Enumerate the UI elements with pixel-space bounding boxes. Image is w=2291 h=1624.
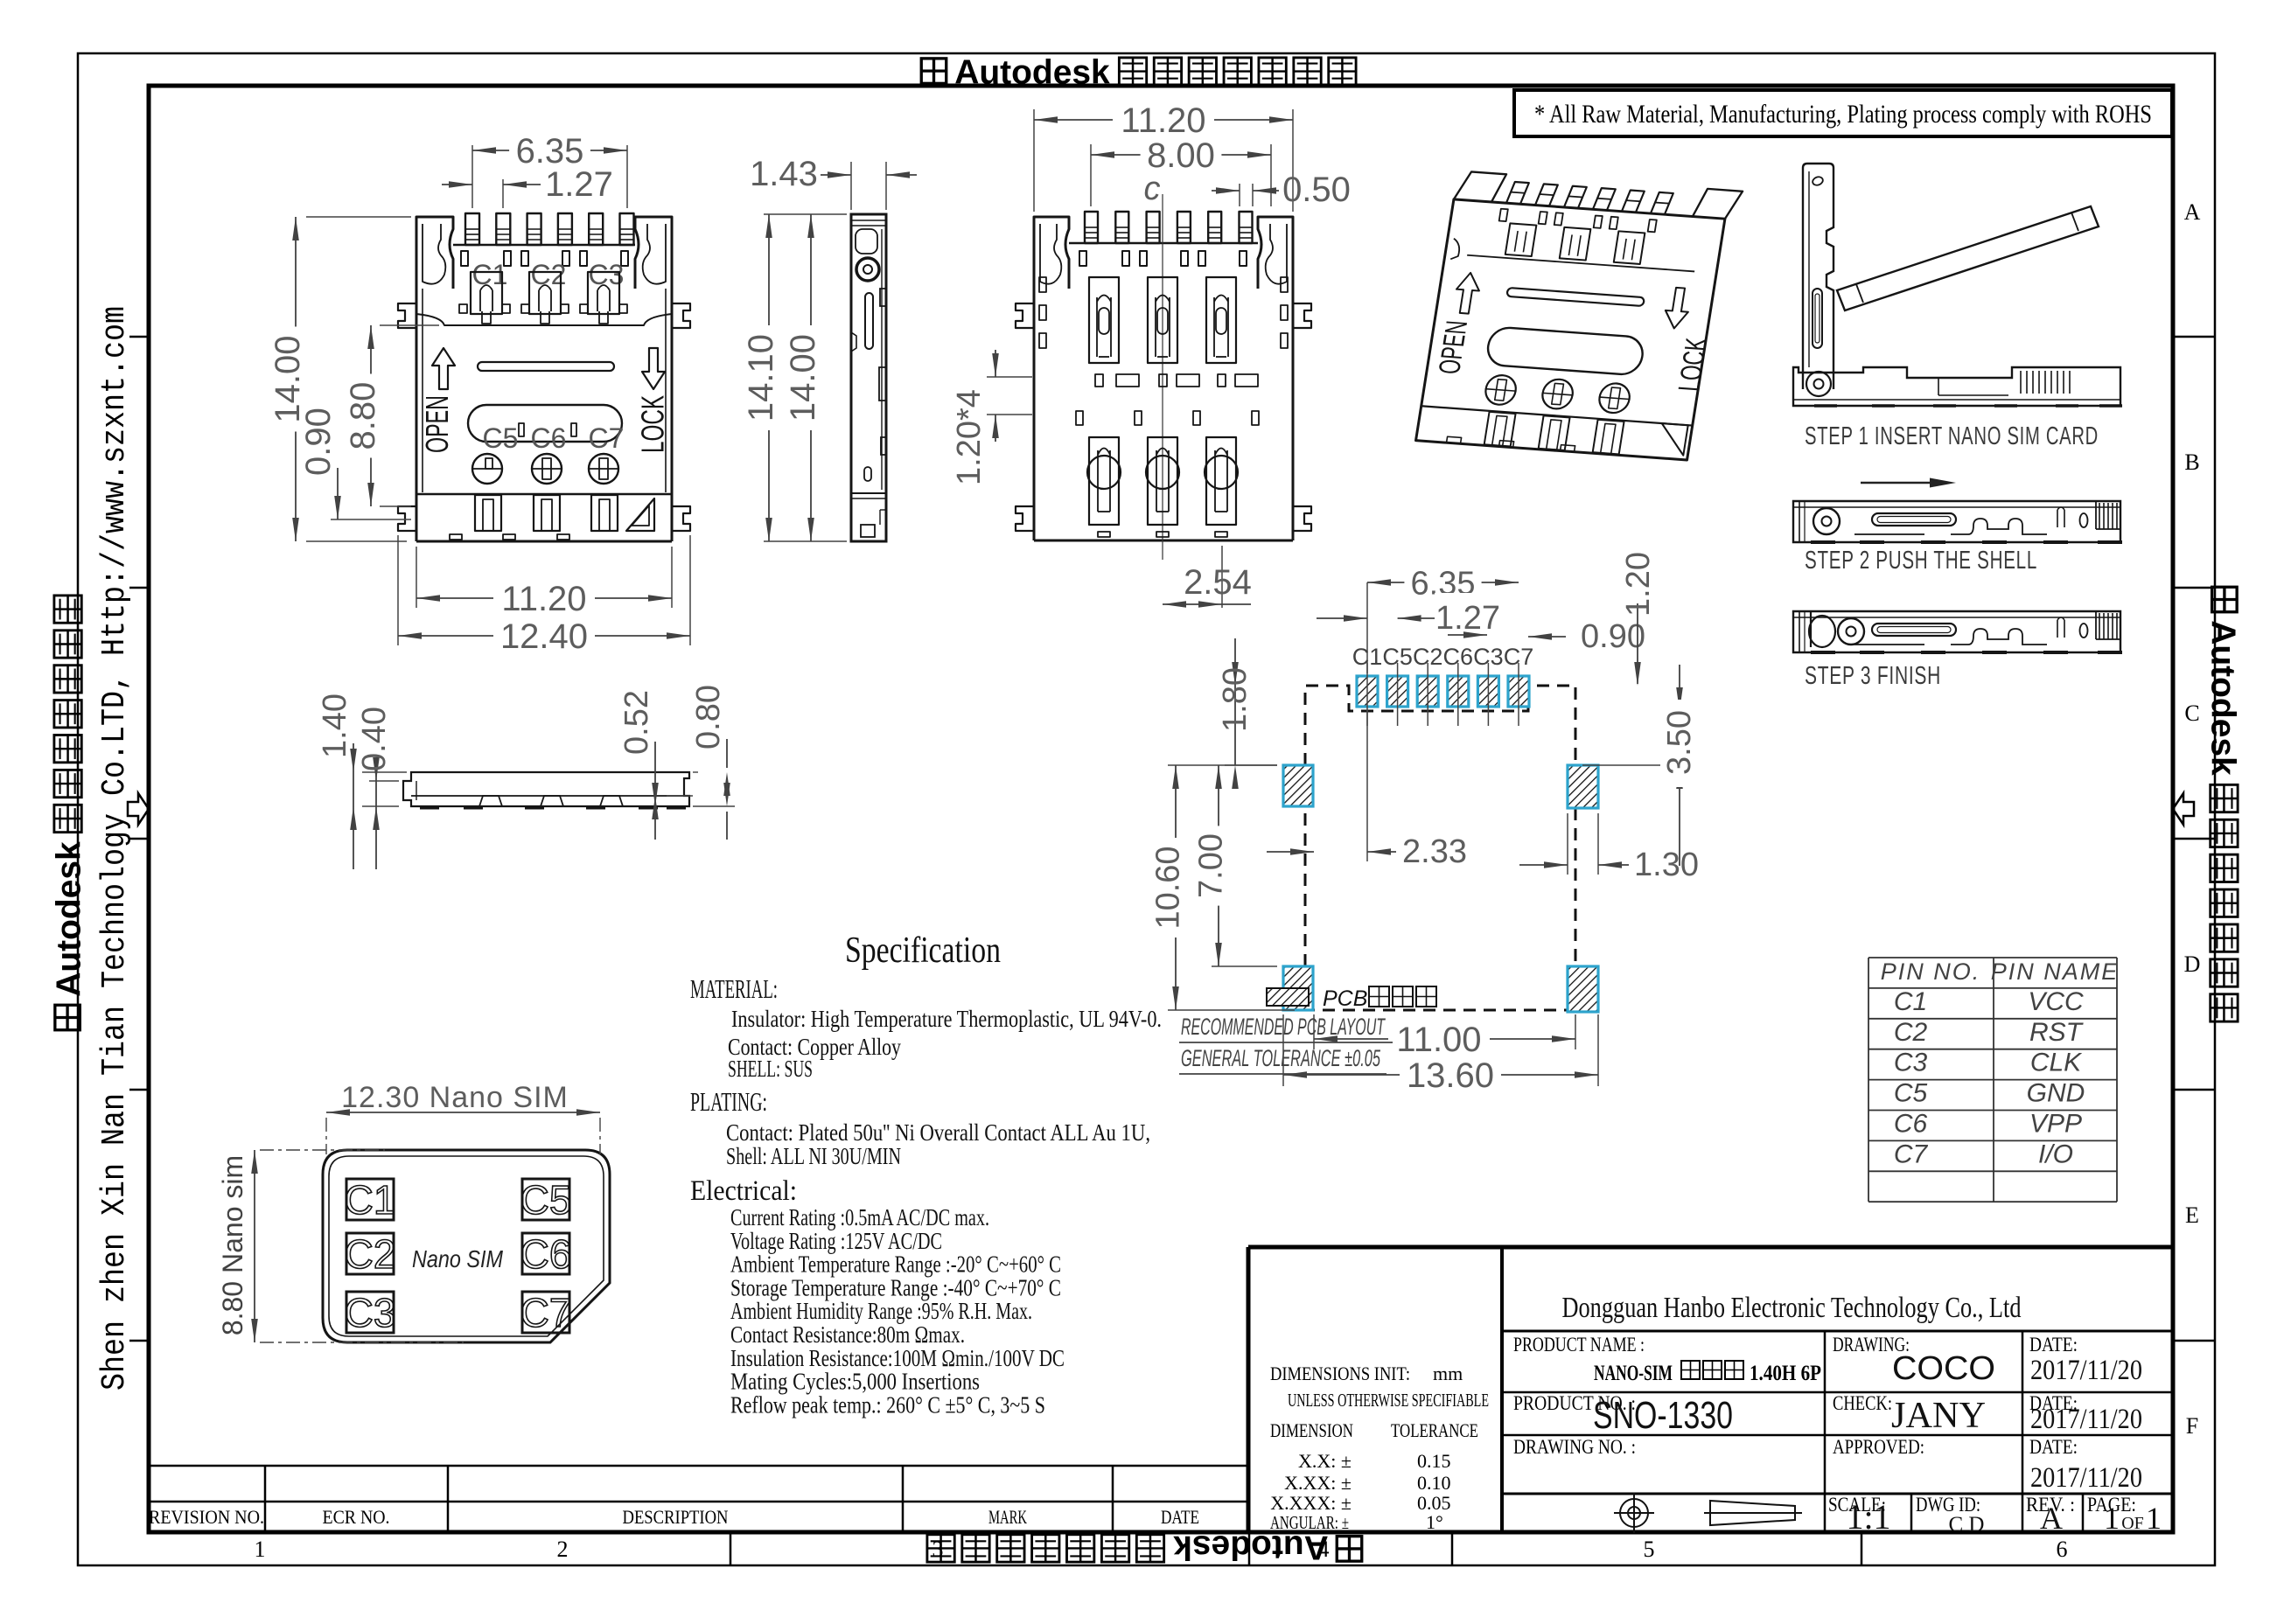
svg-text:1.27: 1.27 [545, 165, 613, 204]
svg-text:0.90: 0.90 [1581, 618, 1645, 655]
svg-text:Specification: Specification [845, 930, 1001, 971]
svg-text:1:1: 1:1 [1846, 1497, 1890, 1537]
svg-text:Insulator: High Temperature Th: Insulator: High Temperature Thermoplasti… [731, 1006, 1162, 1032]
svg-text:1.30: 1.30 [1634, 847, 1699, 883]
svg-text:C5: C5 [1382, 644, 1413, 670]
svg-text:APPROVED:: APPROVED: [1833, 1436, 1924, 1458]
svg-text:REVISION NO.: REVISION NO. [149, 1506, 264, 1528]
svg-text:Reflow peak temp.: 260° C ±5°: Reflow peak temp.: 260° C ±5° C, 3~5 S [730, 1391, 1045, 1418]
svg-text:GND: GND [2027, 1079, 2085, 1108]
svg-text:C5: C5 [1894, 1079, 1928, 1108]
svg-text:1: 1 [2146, 1501, 2162, 1536]
svg-text:11.00: 11.00 [1396, 1021, 1481, 1059]
svg-text:STEP 2 PUSH THE SHELL: STEP 2 PUSH THE SHELL [1805, 547, 2037, 575]
svg-text:GENERAL TOLERANCE ±0.05: GENERAL TOLERANCE ±0.05 [1181, 1045, 1381, 1071]
svg-text:OF: OF [2121, 1514, 2144, 1533]
svg-text:6: 6 [2057, 1537, 2068, 1562]
svg-text:C6: C6 [520, 1231, 572, 1277]
svg-text:DRAWING NO. :: DRAWING NO. : [1513, 1436, 1636, 1458]
svg-text:C: C [2184, 700, 2199, 726]
svg-text:2.54: 2.54 [1184, 563, 1252, 602]
svg-text:PIN NAME: PIN NAME [1991, 958, 2120, 985]
svg-text:Contact Resistance:80m Ωmax.: Contact Resistance:80m Ωmax. [730, 1321, 965, 1348]
svg-text:X.X: ±: X.X: ± [1298, 1450, 1352, 1472]
svg-text:F: F [2186, 1413, 2198, 1439]
svg-text:Nano SIM: Nano SIM [412, 1245, 504, 1272]
svg-text:2017/11/20: 2017/11/20 [2030, 1404, 2142, 1435]
svg-text:RST: RST [2029, 1018, 2085, 1047]
svg-text:B: B [2184, 450, 2199, 475]
svg-text:C7: C7 [520, 1290, 572, 1335]
svg-text:PRODUCT NAME :: PRODUCT NAME : [1513, 1334, 1645, 1356]
svg-text:VCC: VCC [2028, 987, 2084, 1016]
svg-text:CHECK:: CHECK: [1833, 1392, 1892, 1414]
svg-text:5: 5 [1644, 1537, 1655, 1562]
svg-text:C2: C2 [345, 1231, 396, 1277]
svg-text:13.60: 13.60 [1407, 1056, 1494, 1095]
svg-text:COCO: COCO [1892, 1350, 1995, 1387]
svg-text:JANY: JANY [1891, 1396, 1986, 1436]
svg-text:DATE:: DATE: [2029, 1436, 2078, 1458]
svg-text:0.80: 0.80 [690, 685, 727, 749]
svg-text:X.XXX: ±: X.XXX: ± [1270, 1492, 1352, 1514]
svg-text:SHELL: SUS: SHELL: SUS [728, 1056, 813, 1082]
svg-text:X.XX: ±: X.XX: ± [1284, 1472, 1352, 1494]
svg-text:Mating Cycles:5,000 Insertions: Mating Cycles:5,000 Insertions [730, 1369, 980, 1395]
svg-text:LOCK: LOCK [634, 395, 670, 453]
svg-text:ANGULAR: ±: ANGULAR: ± [1270, 1512, 1349, 1533]
svg-text:1.80: 1.80 [1217, 667, 1254, 732]
svg-text:UNLESS OTHERWISE SPECIFIABLE: UNLESS OTHERWISE SPECIFIABLE [1288, 1390, 1489, 1411]
svg-text:E: E [2185, 1202, 2199, 1228]
svg-text:0.15: 0.15 [1417, 1450, 1451, 1472]
svg-text:C6: C6 [1894, 1110, 1928, 1139]
svg-text:1.20*4: 1.20*4 [951, 389, 988, 485]
svg-text:DATE:: DATE: [2029, 1334, 2078, 1356]
svg-text:12.40: 12.40 [500, 617, 588, 656]
svg-text:D: D [2184, 951, 2201, 977]
svg-text:C5: C5 [520, 1177, 572, 1223]
svg-text:1: 1 [255, 1537, 266, 1562]
svg-text:Shell: ALL NI 30U/MIN: Shell: ALL NI 30U/MIN [726, 1143, 901, 1169]
svg-text:C6: C6 [1443, 644, 1474, 670]
svg-text:0.90: 0.90 [299, 408, 338, 476]
svg-text:3.50: 3.50 [1661, 710, 1698, 775]
svg-text:NANO-SIM: NANO-SIM [1594, 1362, 1673, 1385]
svg-text:CLK: CLK [2030, 1049, 2083, 1077]
svg-text:C7: C7 [1894, 1140, 1929, 1168]
svg-text:MATERIAL:: MATERIAL: [690, 973, 778, 1004]
svg-text:SNO-1330: SNO-1330 [1593, 1394, 1733, 1437]
svg-text:C2: C2 [1894, 1018, 1928, 1047]
svg-text:DATE: DATE [1161, 1506, 1199, 1528]
svg-text:A: A [2184, 199, 2201, 225]
svg-text:DESCRIPTION: DESCRIPTION [623, 1506, 729, 1528]
svg-text:C1: C1 [345, 1177, 396, 1223]
svg-text:0.40: 0.40 [356, 707, 393, 771]
svg-text:C5: C5 [483, 422, 519, 454]
svg-text:1.27: 1.27 [1435, 600, 1500, 637]
svg-text:Current Rating :0.5mA AC/DC ma: Current Rating :0.5mA AC/DC max. [730, 1204, 989, 1230]
svg-text:PIN NO.: PIN NO. [1881, 958, 1981, 985]
svg-text:DIMENSION: DIMENSION [1270, 1419, 1353, 1441]
svg-text:PCB: PCB [1323, 986, 1367, 1011]
svg-text:Insulation Resistance:100M Ωmi: Insulation Resistance:100M Ωmin./100V DC [730, 1345, 1065, 1371]
svg-text:2017/11/20: 2017/11/20 [2030, 1355, 2142, 1386]
svg-text:Ambient Temperature Range :-20: Ambient Temperature Range :-20° C~+60° C [730, 1251, 1061, 1278]
svg-text:2: 2 [557, 1537, 569, 1562]
svg-text:I/O: I/O [2038, 1140, 2073, 1168]
svg-text:TOLERANCE: TOLERANCE [1391, 1419, 1478, 1441]
svg-text:C3: C3 [1894, 1049, 1928, 1077]
svg-text:C2: C2 [1413, 644, 1443, 670]
svg-text:c: c [1144, 171, 1161, 207]
svg-text:Voltage Rating :125V AC/DC: Voltage Rating :125V AC/DC [730, 1228, 942, 1254]
svg-text:STEP 3 FINISH: STEP 3 FINISH [1805, 662, 1941, 690]
svg-text:C7: C7 [589, 422, 625, 454]
svg-text:8.00: 8.00 [1147, 136, 1215, 175]
svg-text:Dongguan Hanbo Electronic Tech: Dongguan Hanbo Electronic Technology Co.… [1562, 1292, 2022, 1324]
svg-text:PLATING:: PLATING: [690, 1086, 767, 1117]
svg-text:11.20: 11.20 [501, 580, 586, 618]
svg-text:8.80 Nano sim: 8.80 Nano sim [217, 1155, 248, 1335]
svg-text:1.40H 6P: 1.40H 6P [1750, 1362, 1821, 1385]
svg-text:* All Raw Material, Manufactur: * All Raw Material, Manufacturing, Plati… [1534, 100, 2152, 129]
svg-text:C3: C3 [345, 1290, 396, 1335]
svg-text:C7: C7 [1504, 644, 1534, 670]
svg-text:2017/11/20: 2017/11/20 [2030, 1462, 2142, 1494]
svg-text:Electrical:: Electrical: [690, 1175, 797, 1207]
svg-text:C D: C D [1949, 1513, 1985, 1537]
svg-text:1.20: 1.20 [1620, 552, 1657, 617]
svg-text:7.00: 7.00 [1193, 833, 1230, 898]
svg-text:DIMENSIONS INIT:: DIMENSIONS INIT: [1270, 1363, 1410, 1384]
svg-text:ECR NO.: ECR NO. [323, 1506, 390, 1528]
svg-text:0.52: 0.52 [618, 690, 655, 755]
svg-text:1.43: 1.43 [750, 155, 818, 193]
svg-text:0.10: 0.10 [1417, 1472, 1451, 1494]
svg-text:8.80: 8.80 [344, 382, 382, 450]
svg-text:RECOMMENDED PCB LAYOUT: RECOMMENDED PCB LAYOUT [1181, 1014, 1386, 1040]
svg-text:mm: mm [1433, 1363, 1463, 1384]
svg-text:1: 1 [2104, 1501, 2120, 1536]
svg-text:12.30 Nano SIM: 12.30 Nano SIM [341, 1081, 569, 1114]
svg-text:Contact: Plated 50u'' Ni Overa: Contact: Plated 50u'' Ni Overall Contact… [726, 1119, 1150, 1146]
svg-text:Ambient Humidity Range :95% R.: Ambient Humidity Range :95% R.H. Max. [730, 1298, 1032, 1324]
svg-text:0.50: 0.50 [1282, 171, 1351, 209]
svg-text:C1: C1 [1894, 987, 1927, 1016]
svg-text:C6: C6 [531, 422, 567, 454]
svg-text:1.40: 1.40 [317, 694, 353, 758]
svg-text:C3: C3 [1473, 644, 1504, 670]
svg-text:MARK: MARK [988, 1506, 1027, 1528]
svg-text:1°: 1° [1426, 1511, 1443, 1533]
svg-text:OPEN: OPEN [419, 395, 455, 453]
svg-text:VPP: VPP [2029, 1110, 2082, 1139]
svg-text:2.33: 2.33 [1402, 833, 1467, 870]
svg-text:STEP 1 INSERT NANO SIM CARD: STEP 1 INSERT NANO SIM CARD [1805, 422, 2099, 450]
svg-text:A: A [2040, 1501, 2063, 1536]
svg-text:14.10: 14.10 [742, 334, 780, 422]
svg-text:14.00: 14.00 [784, 334, 822, 422]
svg-text:10.60: 10.60 [1150, 846, 1187, 929]
svg-text:Storage Temperature Range :-40: Storage Temperature Range :-40° C~+70° C [730, 1274, 1061, 1300]
svg-text:Shen zhen Xin Nan Tian Technol: Shen zhen Xin Nan Tian Technology Co.LTD… [96, 306, 134, 1391]
